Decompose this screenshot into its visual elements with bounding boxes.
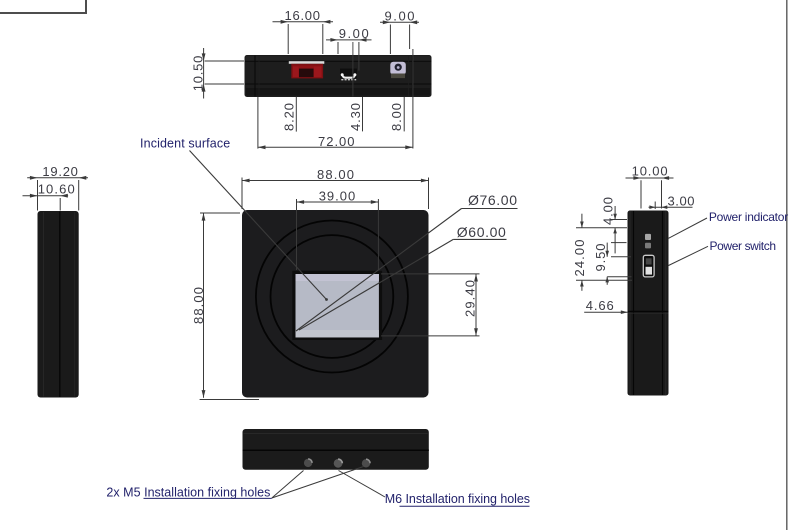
- svg-text:10.00: 10.00: [632, 163, 668, 178]
- svg-text:Incident surface: Incident surface: [140, 137, 230, 151]
- svg-text:9.50: 9.50: [593, 244, 608, 272]
- svg-text:19.20: 19.20: [42, 164, 78, 179]
- svg-text:2x M5 Installation fixing hole: 2x M5 Installation fixing holes: [106, 485, 270, 499]
- svg-text:16.00: 16.00: [285, 8, 321, 23]
- svg-text:4.66: 4.66: [586, 298, 614, 313]
- svg-text:Ø60.00: Ø60.00: [457, 224, 506, 240]
- svg-text:4.30: 4.30: [348, 103, 363, 131]
- svg-text:3.00: 3.00: [668, 193, 695, 208]
- svg-text:72.00: 72.00: [318, 134, 355, 149]
- svg-text:8.20: 8.20: [281, 103, 296, 131]
- svg-text:Ø76.00: Ø76.00: [468, 192, 517, 208]
- svg-text:24.00: 24.00: [572, 240, 587, 277]
- svg-text:29.40: 29.40: [463, 280, 478, 317]
- svg-text:Power switch: Power switch: [710, 239, 777, 253]
- svg-text:8.00: 8.00: [389, 103, 404, 131]
- svg-text:4.00: 4.00: [600, 197, 615, 225]
- svg-text:M6 Installation fixing holes: M6 Installation fixing holes: [385, 492, 530, 506]
- svg-text:39.00: 39.00: [319, 189, 356, 204]
- svg-text:10.60: 10.60: [38, 182, 75, 197]
- svg-text:88.00: 88.00: [317, 167, 354, 182]
- svg-text:9.00: 9.00: [385, 8, 415, 23]
- svg-text:Power indicator: Power indicator: [709, 210, 788, 224]
